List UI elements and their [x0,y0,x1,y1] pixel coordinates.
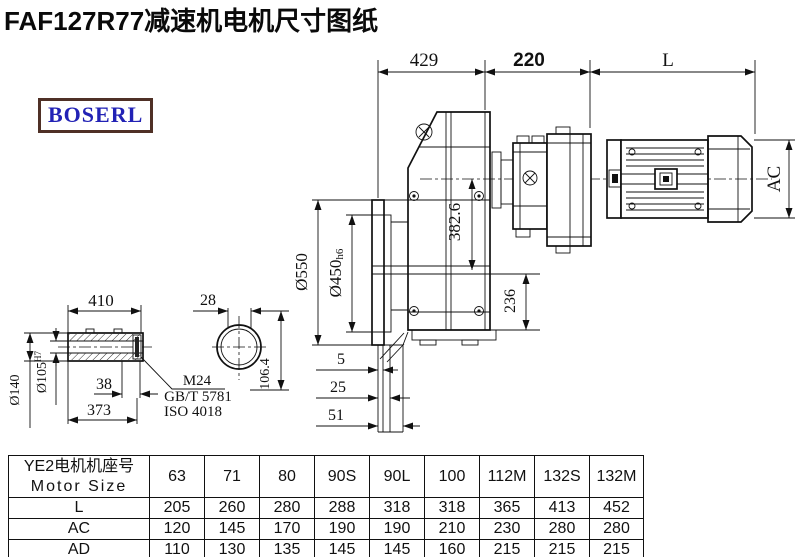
motor-size-header-en: Motor Size [9,477,149,497]
size-header-63: 63 [150,456,205,498]
cell-AD-90L: 145 [370,540,425,557]
dim-AC-label: AC [764,166,785,192]
cell-AD-80: 135 [260,540,315,557]
cell-L-71: 260 [205,498,260,519]
page: 429 220 L AC Ø550 Ø450h6 382.6 236 410 2… [0,0,800,557]
size-header-90L: 90L [370,456,425,498]
dim-51-label: 51 [328,407,344,424]
cell-AC-63: 120 [150,519,205,540]
coupling-adapter [492,127,591,253]
dim-382-6-label: 382.6 [445,203,464,241]
cell-L-132S: 413 [535,498,590,519]
size-header-100: 100 [425,456,480,498]
size-header-132S: 132S [535,456,590,498]
dim-dia450h6-label: Ø450h6 [326,248,346,297]
cell-AC-71: 145 [205,519,260,540]
row-label-AD: AD [9,540,150,557]
standard-iso-label: ISO 4018 [164,404,222,420]
dim-410-label: 410 [88,291,114,310]
cell-L-90L: 318 [370,498,425,519]
size-header-90S: 90S [315,456,370,498]
cell-AC-112M: 230 [480,519,535,540]
cell-AC-100: 210 [425,519,480,540]
cell-AC-132S: 280 [535,519,590,540]
dim-38-label: 38 [96,376,112,393]
row-label-AC: AC [9,519,150,540]
table-row-AC: AC 120 145 170 190 190 210 230 280 280 [9,519,644,540]
cell-L-100: 318 [425,498,480,519]
cell-AC-90S: 190 [315,519,370,540]
cell-AD-90S: 145 [315,540,370,557]
cell-AC-80: 170 [260,519,315,540]
dim-106-4-label: 106.4 [258,358,273,390]
cell-AD-63: 110 [150,540,205,557]
hollow-shaft-detail [50,329,143,361]
row-label-L: L [9,498,150,519]
dim-L-label: L [662,50,674,71]
dim-429-label: 429 [410,50,439,71]
cell-L-80: 280 [260,498,315,519]
motor-size-table: YE2电机机座号 Motor Size 63 71 80 90S 90L 100… [8,455,644,557]
cell-AD-100: 160 [425,540,480,557]
cell-L-63: 205 [150,498,205,519]
dim-28-label: 28 [200,292,216,309]
dim-dia140-label: Ø140 [8,374,23,405]
dim-220-label: 220 [513,50,545,71]
motor-size-header-cn: YE2电机机座号 [9,457,149,477]
cell-AD-71: 130 [205,540,260,557]
table-header-row: YE2电机机座号 Motor Size 63 71 80 90S 90L 100… [9,456,644,498]
size-header-71: 71 [205,456,260,498]
cell-L-132M: 452 [590,498,644,519]
table-row-AD: AD 110 130 135 145 145 160 215 215 215 [9,540,644,557]
dim-236-label: 236 [502,289,519,313]
cell-AD-112M: 215 [480,540,535,557]
dim-5-label: 5 [337,351,345,368]
cell-L-90S: 288 [315,498,370,519]
cell-AC-132M: 280 [590,519,644,540]
cell-AD-132S: 215 [535,540,590,557]
motor-size-header: YE2电机机座号 Motor Size [9,456,150,498]
size-header-112M: 112M [480,456,535,498]
cell-AD-132M: 215 [590,540,644,557]
standard-gb-label: GB/T 5781 [164,389,232,405]
dim-373-label: 373 [87,402,111,419]
dim-dia105H7-label: Ø105H7 [33,350,50,393]
size-header-132M: 132M [590,456,644,498]
cell-L-112M: 365 [480,498,535,519]
page-title: FAF127R77减速机电机尺寸图纸 [4,1,378,38]
boserl-logo: BOSERL [38,98,153,133]
size-header-80: 80 [260,456,315,498]
technical-drawing: 429 220 L AC Ø550 Ø450h6 382.6 236 410 2… [0,0,800,455]
boserl-logo-text: BOSERL [48,102,143,127]
table-row-L: L 205 260 280 288 318 318 365 413 452 [9,498,644,519]
cell-AC-90L: 190 [370,519,425,540]
dim-dia550-label: Ø550 [292,253,311,291]
thread-M24-label: M24 [183,373,212,389]
dim-25-label: 25 [330,379,346,396]
